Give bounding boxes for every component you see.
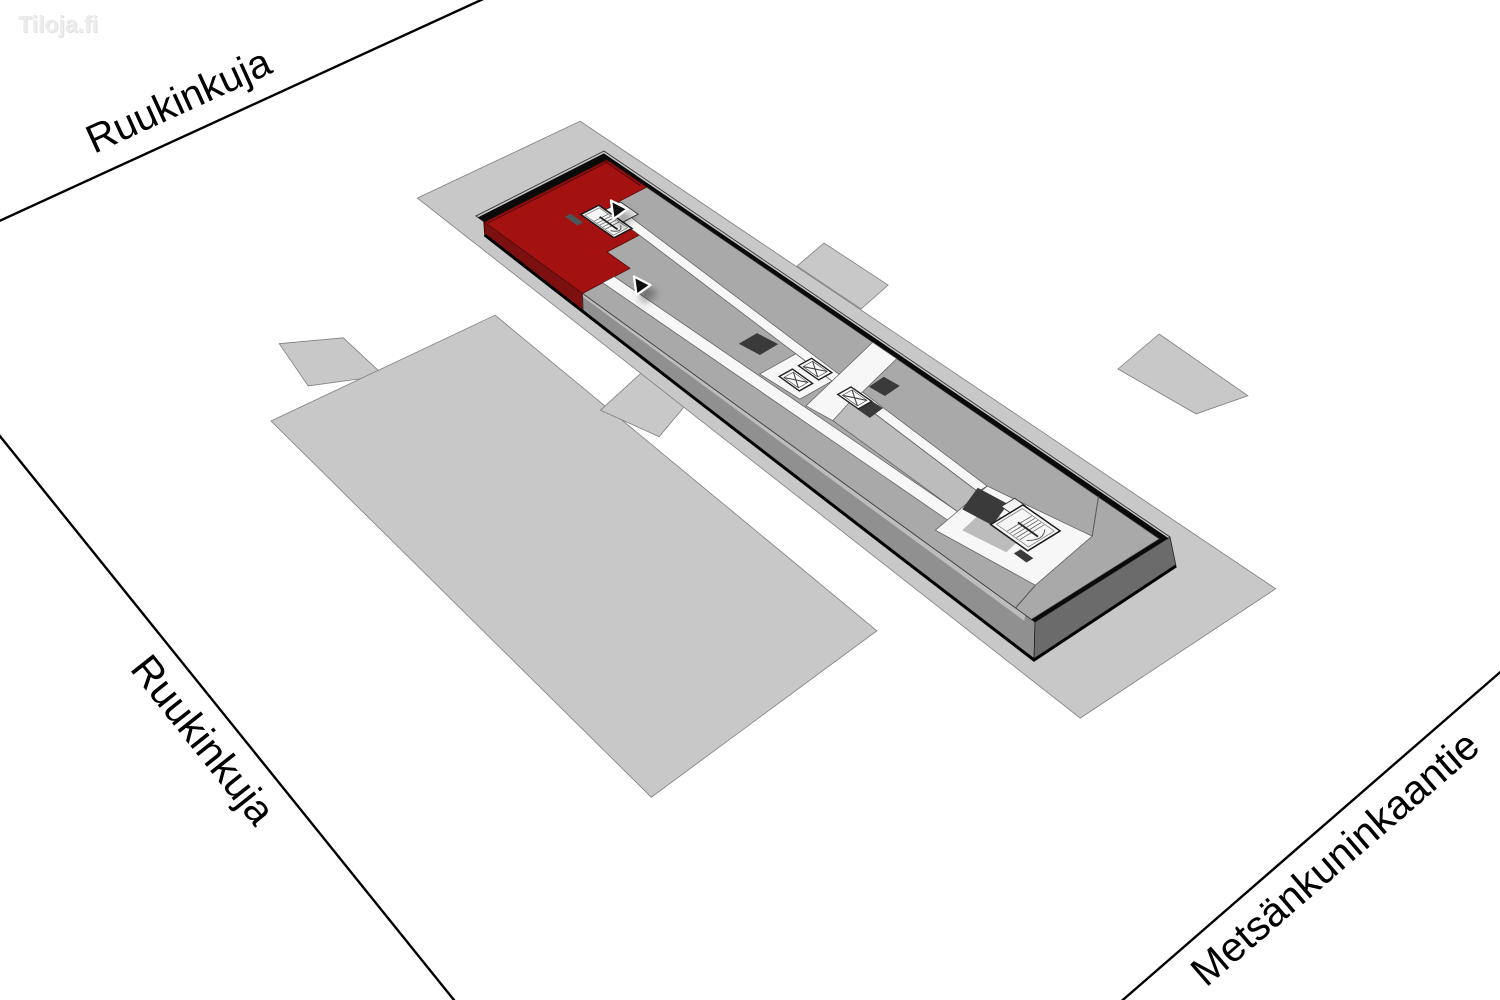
svg-text:Tiloja.fi: Tiloja.fi	[18, 11, 98, 37]
